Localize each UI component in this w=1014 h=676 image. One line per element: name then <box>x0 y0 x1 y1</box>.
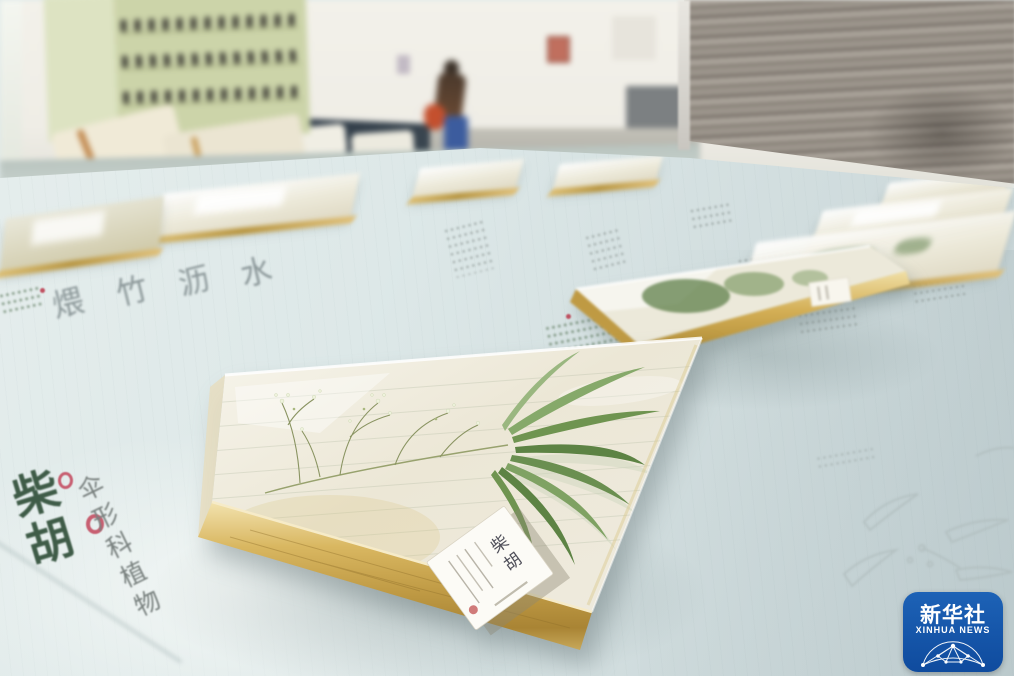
slab-sheen <box>31 211 105 245</box>
wall-panel <box>612 16 656 60</box>
bottle-shelf-row <box>122 50 300 71</box>
slab-sheen <box>193 186 286 215</box>
xinhua-en-title: XINHUA NEWS <box>903 625 1003 635</box>
xinhua-watermark-logo: 新华社 XINHUA NEWS <box>903 592 1003 672</box>
wall-frame-red <box>547 36 570 63</box>
wall-frame <box>397 55 410 74</box>
visitor-silhouette <box>424 58 488 158</box>
wood-partition-edge <box>678 0 690 150</box>
network-globe-icon <box>918 638 988 668</box>
bottle-shelf-row <box>120 14 298 35</box>
wood-shadow <box>867 85 1014 182</box>
specimen-block-main: 柴 胡 <box>190 325 780 670</box>
visitor-red-bag <box>424 104 446 130</box>
exhibition-photo: 煨 竹 沥 水 柴 胡 伞形科植物 <box>0 0 1014 676</box>
red-accent-dot <box>40 288 45 293</box>
specimen-label-small <box>809 277 852 306</box>
bottle-shelf-row <box>123 86 301 107</box>
